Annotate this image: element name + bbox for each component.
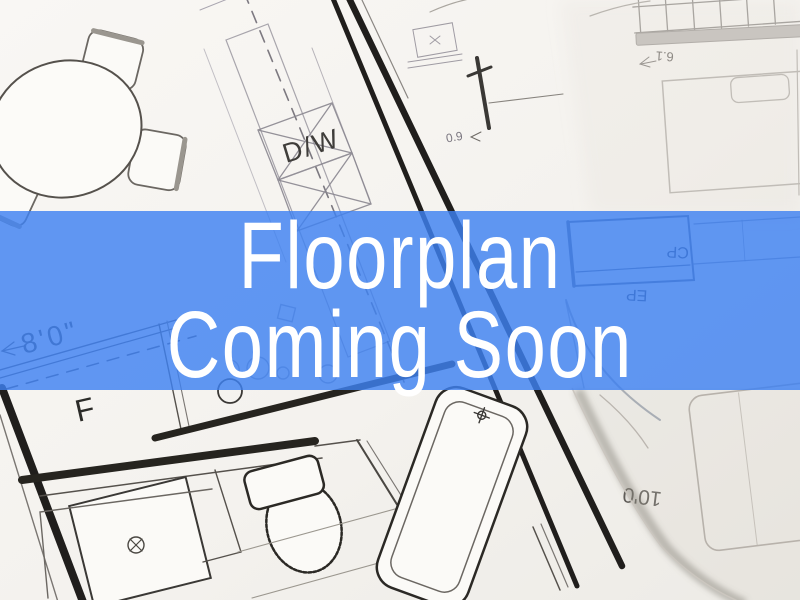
dimension-label-6-1: 6.1 [655,48,674,64]
floorplan-placeholder-image: D/W 8'0" F CP EP 10'0 6.1 0.9 Floorplan … [0,0,800,600]
banner-title-line1: Floorplan [239,212,562,301]
banner-title-line2: Coming Soon [167,301,633,390]
dimension-label-0-9: 0.9 [445,129,464,146]
coming-soon-banner: Floorplan Coming Soon [0,211,800,390]
